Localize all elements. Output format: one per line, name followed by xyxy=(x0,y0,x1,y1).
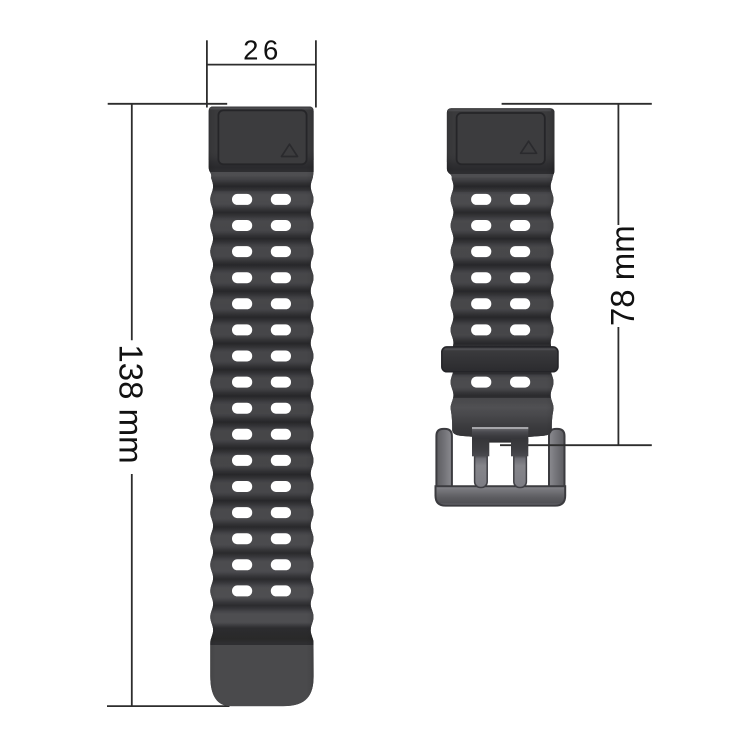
svg-text:26: 26 xyxy=(243,35,283,66)
svg-text:138 mm: 138 mm xyxy=(113,344,150,463)
svg-text:78 mm: 78 mm xyxy=(604,225,641,326)
